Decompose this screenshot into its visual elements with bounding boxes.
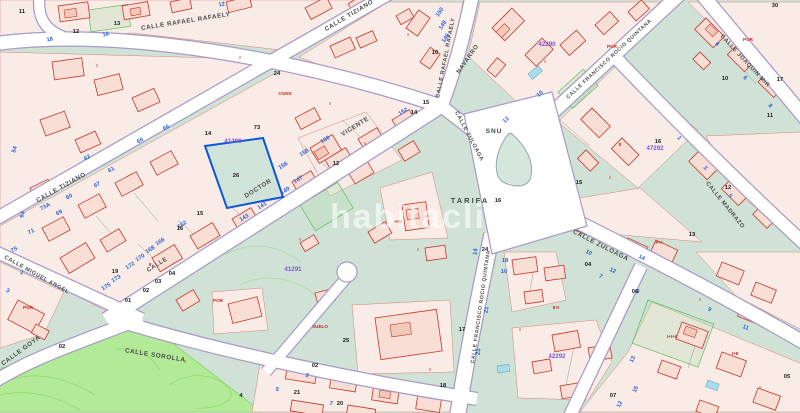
block-id-label: 47292: [646, 145, 664, 152]
parcel-number: 04: [169, 271, 176, 277]
parcel-number: 20: [337, 401, 343, 407]
parcel-number: 01: [125, 298, 132, 304]
parcel-number: 13: [689, 232, 696, 238]
building-code: POR: [607, 44, 618, 49]
parcel-number: 15: [423, 100, 430, 106]
building-code: POR: [213, 298, 224, 303]
block-id-label: 41290: [224, 138, 242, 145]
parcel-number: 26: [233, 173, 240, 179]
building-code: SUELO: [312, 324, 328, 329]
building-code: I: [417, 247, 418, 252]
building-code: I: [699, 297, 700, 302]
zone-label: SNU: [486, 128, 503, 135]
block-id-label: 41291: [284, 266, 302, 273]
building-code: CONS: [278, 91, 291, 96]
parcel-number: 17: [459, 327, 465, 333]
building-code: I: [429, 367, 430, 372]
street-number: 18: [502, 258, 509, 264]
building-code: I: [239, 55, 240, 60]
cadastral-map[interactable]: CALLE RAFAEL RAFAELYCALLE RAFAEL RAFAELY…: [0, 0, 800, 413]
parcel-number: 02: [59, 344, 65, 350]
building-code: I: [184, 359, 185, 364]
parcel-number: 14: [205, 131, 212, 137]
parcel-number: 12: [725, 185, 731, 191]
parcel-number: 07: [610, 393, 616, 399]
watermark: habitaclia: [330, 198, 507, 236]
block-id-label: 42292: [548, 353, 566, 360]
building-code: I: [329, 101, 330, 106]
building-code: I: [544, 59, 545, 64]
building-code: I: [96, 63, 97, 68]
parcel-number: 02: [312, 363, 318, 369]
cadastral-map-viewport[interactable]: CALLE RAFAEL RAFAELYCALLE RAFAEL RAFAELY…: [0, 0, 800, 413]
parcel-number: 73: [254, 125, 261, 131]
parcel-number: 02: [143, 288, 149, 294]
parcel-number: 11: [19, 9, 26, 15]
parcel-number: 14: [411, 110, 418, 116]
block-id-label: 42290: [538, 41, 556, 48]
building-code: POR: [743, 37, 754, 42]
parcel-number: 06: [632, 289, 639, 295]
building-code: P+I: [655, 240, 662, 245]
parcel-number: 05: [784, 374, 791, 380]
parcel-number: 04: [585, 262, 592, 268]
building-code: I: [299, 237, 300, 242]
parcel-number: 12: [73, 29, 79, 35]
building-code: II+I: [553, 305, 560, 310]
parcel-number: 15: [197, 211, 204, 217]
street-number: 10: [501, 269, 507, 275]
parcel-number: 21: [294, 390, 301, 396]
building-code: I: [364, 141, 365, 146]
building-code: I: [759, 385, 760, 390]
parcel-number: 03: [155, 279, 162, 285]
parcel-number: 16: [177, 226, 184, 232]
parcel-number: 15: [576, 180, 583, 186]
building-code: I+I+II: [667, 334, 677, 339]
parcel-number: 18: [440, 383, 447, 389]
parcel-number: 12: [333, 161, 339, 167]
building-code: POR: [23, 305, 34, 310]
parcel-number: 19: [112, 269, 119, 275]
building-code: I: [519, 327, 520, 332]
parcel-number: 16: [655, 139, 662, 145]
building-code: II: [619, 142, 622, 147]
building-code: I+II: [732, 351, 739, 356]
parcel-number: 30: [772, 3, 778, 9]
building-code: I: [609, 175, 610, 180]
parcel-number: 17: [777, 77, 783, 83]
building-code: II: [149, 262, 152, 267]
parcel-number: 10: [432, 50, 438, 56]
parcel-number: 13: [114, 21, 121, 27]
parcel-number: 10: [722, 76, 728, 82]
parcel-number: 25: [343, 338, 350, 344]
building-code: I: [407, 32, 408, 37]
culdesac-bulb: [337, 262, 357, 282]
parcel-number: 24: [274, 71, 281, 77]
parcel-number: 24: [482, 247, 489, 253]
parcel-number: 11: [767, 113, 774, 119]
